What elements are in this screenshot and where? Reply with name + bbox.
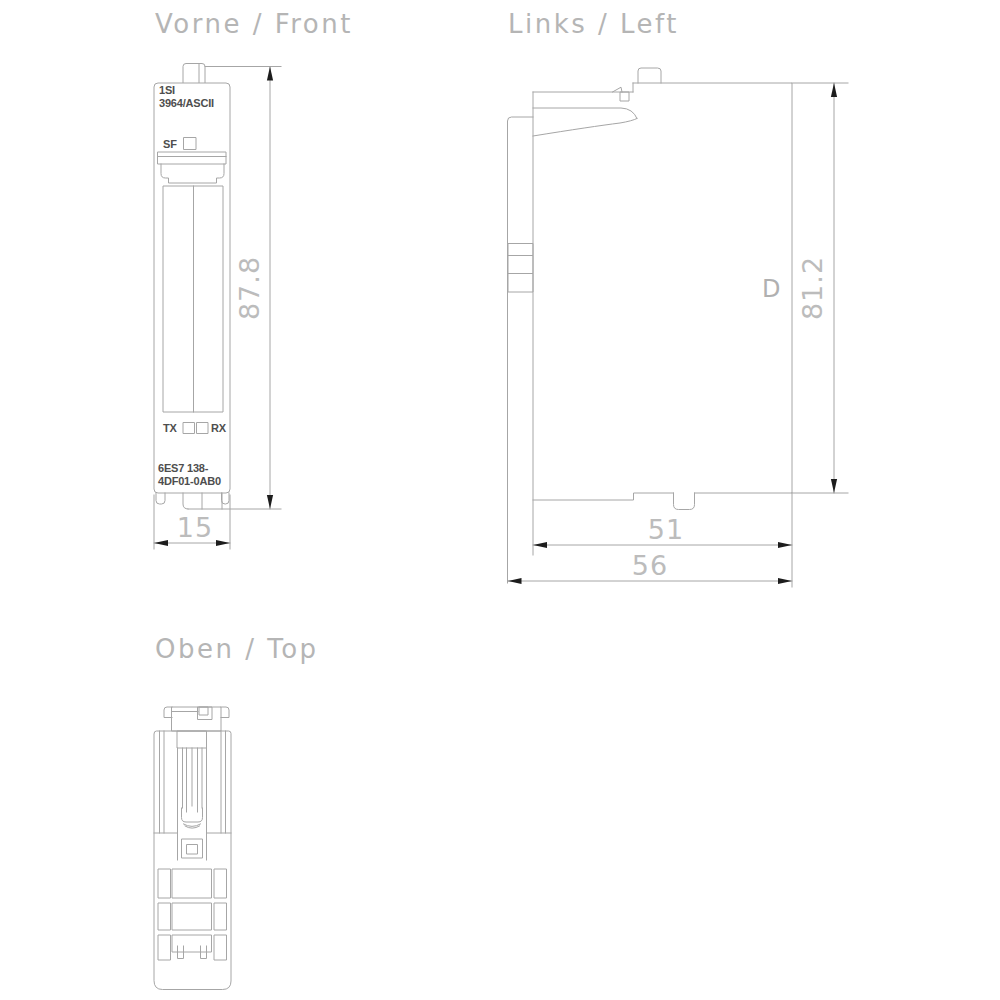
terminal-bottom-edge (533, 108, 637, 119)
tx-led-label: TX (163, 422, 178, 434)
left-view-title: Links / Left (508, 9, 679, 39)
front-view-title: Vorne / Front (155, 9, 353, 39)
arrowhead-left (533, 542, 547, 548)
detail-cell (173, 869, 212, 898)
arrowhead-left (154, 540, 168, 546)
bus-connector-body (172, 707, 221, 731)
detail-cell (159, 869, 171, 898)
front-height-dim-text: 87.8 (234, 256, 265, 320)
arrowhead-down (267, 495, 273, 509)
arrowhead-down (831, 479, 837, 493)
bus-connector-notch (198, 707, 212, 720)
top-view-title: Oben / Top (155, 634, 319, 664)
front-top-tab (183, 64, 205, 84)
arrowhead-right (778, 578, 792, 584)
din-latch-segment (509, 274, 534, 293)
bus-connector-ear-left (164, 707, 172, 718)
slider-end-bracket (182, 808, 203, 822)
detail-cell (215, 903, 227, 930)
left-top-tab (638, 68, 661, 83)
front-foot-left (156, 493, 165, 504)
front-bottom-tab (183, 493, 188, 509)
left-height-dim-text: 81.2 (797, 256, 828, 320)
left-view: D (508, 68, 793, 583)
left-depth-inner-dim-text: 51 (648, 514, 684, 545)
order-number-line1: 6ES7 138- (158, 462, 209, 474)
release-latch-triangle (613, 87, 623, 92)
arrowhead-up (267, 67, 273, 81)
module-type-label-line1: 1SI (159, 84, 175, 96)
rx-led-label: RX (211, 422, 227, 434)
connector-recess (178, 731, 207, 748)
release-latch-box (621, 92, 630, 101)
top-view (154, 707, 231, 990)
bus-connector-notch-inner (200, 707, 209, 715)
front-foot-right (222, 493, 230, 504)
detail-cell (215, 935, 227, 960)
arrowhead-up (831, 83, 837, 97)
left-depth-outer-dim-text: 56 (632, 550, 668, 581)
front-width-dimension: 15 (154, 495, 230, 549)
detail-cell (173, 935, 212, 952)
left-body-outline (533, 83, 792, 500)
din-rail-block (508, 117, 534, 583)
detail-cell (215, 869, 227, 898)
arrowhead-right (778, 542, 792, 548)
side-marking-letter: D (762, 275, 780, 303)
module-type-label-line2: 3964/ASCII (159, 97, 214, 109)
front-view: 1SI 3964/ASCII SF TX RX 6ES7 138- 4DF01-… (154, 64, 230, 510)
left-bottom-foot (674, 493, 695, 510)
left-height-dimension: 81.2 (792, 83, 848, 493)
front-width-dim-text: 15 (177, 512, 213, 543)
arrowhead-right (216, 540, 230, 546)
detail-cell (173, 903, 212, 930)
technical-drawing-svg: Vorne / Front Links / Left Oben / Top 1S… (0, 0, 1000, 1000)
detail-cell (159, 903, 171, 930)
left-depth-outer-dimension: 56 (508, 550, 793, 584)
bus-connector-ear-right (221, 707, 229, 718)
coding-square-inner (187, 845, 198, 855)
coding-square-outer (182, 839, 203, 858)
detail-cell (159, 935, 171, 960)
din-latch-segment (509, 256, 534, 274)
drawing-page: Vorne / Front Links / Left Oben / Top 1S… (0, 0, 1000, 1000)
din-latch-segment (509, 244, 534, 256)
front-slope-edge (533, 119, 637, 137)
arrowhead-left (508, 578, 522, 584)
order-number-line2: 4DF01-0AB0 (158, 475, 221, 487)
sf-led-label: SF (163, 138, 177, 150)
